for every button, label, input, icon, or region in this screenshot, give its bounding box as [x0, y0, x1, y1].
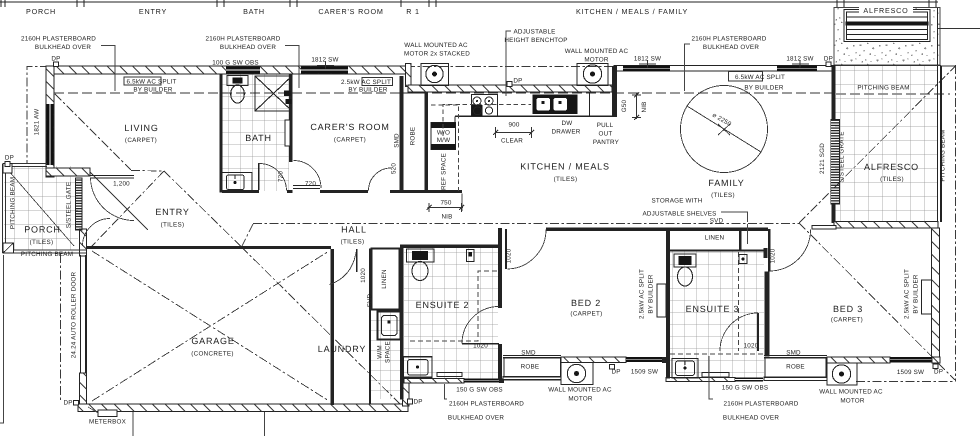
svg-text:900: 900 — [508, 122, 519, 129]
svg-text:150 G SW OBS: 150 G SW OBS — [722, 385, 769, 392]
svg-text:WALL MOUNTED AC: WALL MOUNTED AC — [404, 42, 468, 49]
svg-text:PULL: PULL — [597, 122, 614, 129]
svg-text:1812 SW: 1812 SW — [311, 57, 338, 64]
svg-text:(CONCRETE): (CONCRETE) — [191, 351, 234, 358]
svg-text:SPACE: SPACE — [385, 341, 392, 363]
svg-text:WALL MOUNTED AC: WALL MOUNTED AC — [565, 48, 629, 55]
svg-text:24.24 AUTO ROLLER DOOR: 24.24 AUTO ROLLER DOOR — [71, 271, 78, 358]
svg-text:2160H PLASTERBOARD: 2160H PLASTERBOARD — [21, 36, 96, 43]
svg-text:SVD: SVD — [710, 218, 724, 225]
svg-text:PITCHING BEAM: PITCHING BEAM — [857, 85, 909, 92]
svg-text:720: 720 — [305, 181, 316, 188]
svg-text:REF SPACE: REF SPACE — [441, 153, 448, 190]
svg-text:ENTRY: ENTRY — [139, 7, 167, 16]
svg-text:BULKHEAD OVER: BULKHEAD OVER — [220, 44, 276, 51]
svg-text:BY BUILDER: BY BUILDER — [913, 274, 920, 314]
svg-text:NIB: NIB — [441, 214, 452, 221]
svg-text:SMD: SMD — [394, 133, 401, 148]
svg-text:1020: 1020 — [473, 343, 488, 350]
svg-text:1509 SW: 1509 SW — [897, 369, 924, 376]
svg-text:BED 3: BED 3 — [833, 304, 863, 314]
svg-text:6.5kW AC SPLIT: 6.5kW AC SPLIT — [735, 74, 785, 81]
svg-text:G50: G50 — [621, 99, 628, 112]
svg-text:(TILES): (TILES) — [711, 192, 735, 199]
svg-text:720: 720 — [278, 171, 285, 182]
svg-text:MOTOR: MOTOR — [584, 57, 609, 64]
svg-text:SMD: SMD — [521, 350, 536, 357]
svg-text:SVD: SVD — [367, 293, 374, 307]
svg-text:KITCHEN / MEALS: KITCHEN / MEALS — [520, 162, 610, 172]
svg-text:1020: 1020 — [770, 248, 777, 263]
svg-text:2.5kW AC SPLIT: 2.5kW AC SPLIT — [904, 269, 911, 319]
svg-text:SMD: SMD — [786, 350, 801, 357]
svg-text:DW: DW — [562, 120, 573, 127]
svg-text:DP: DP — [414, 398, 423, 405]
svg-text:LINEN: LINEN — [705, 235, 725, 242]
svg-text:(CARPET): (CARPET) — [334, 137, 366, 144]
svg-text:150 G SW OBS: 150 G SW OBS — [456, 387, 503, 394]
svg-text:DP: DP — [612, 369, 621, 376]
svg-text:BATH: BATH — [243, 7, 265, 16]
svg-text:6.5kW AC SPLIT: 6.5kW AC SPLIT — [126, 79, 176, 86]
svg-text:HALL: HALL — [341, 225, 367, 235]
svg-text:WALL MOUNTED AC: WALL MOUNTED AC — [819, 389, 883, 396]
svg-text:CARER'S ROOM: CARER'S ROOM — [318, 7, 383, 16]
svg-text:W/M: W/M — [377, 345, 384, 359]
svg-text:100 G SW OBS: 100 G SW OBS — [212, 60, 259, 67]
svg-text:750: 750 — [440, 200, 451, 207]
svg-text:W/O: W/O — [437, 130, 450, 137]
svg-text:LAUNDRY: LAUNDRY — [318, 344, 366, 354]
svg-text:(TILES): (TILES) — [554, 176, 578, 183]
svg-text:ENSUITE 2: ENSUITE 2 — [416, 300, 470, 310]
svg-text:MOTOR: MOTOR — [840, 398, 865, 405]
svg-text:(TILES): (TILES) — [341, 239, 365, 246]
svg-text:(CARPET): (CARPET) — [570, 311, 602, 318]
svg-text:MOTOR 2x STACKED: MOTOR 2x STACKED — [404, 51, 470, 58]
svg-text:NIB: NIB — [641, 101, 648, 112]
svg-text:1509 SW: 1509 SW — [631, 369, 658, 376]
svg-text:BULKHEAD OVER: BULKHEAD OVER — [35, 44, 91, 51]
svg-text:PITCHING BEAM: PITCHING BEAM — [10, 177, 17, 229]
svg-text:DP: DP — [934, 369, 943, 376]
svg-text:1020: 1020 — [506, 248, 513, 263]
svg-text:R 1: R 1 — [406, 7, 420, 16]
svg-text:1,200: 1,200 — [113, 181, 130, 188]
svg-text:STORAGE WITH: STORAGE WITH — [652, 198, 703, 205]
svg-text:CLEAR: CLEAR — [501, 138, 523, 145]
svg-text:S/STEEL GATE: S/STEEL GATE — [66, 182, 73, 229]
svg-text:DP: DP — [64, 400, 73, 407]
svg-text:BATH: BATH — [245, 133, 272, 143]
svg-text:DP: DP — [51, 56, 60, 63]
svg-text:520: 520 — [391, 163, 398, 174]
svg-text:PITCHING BEAM: PITCHING BEAM — [940, 129, 947, 181]
svg-text:(CARPET): (CARPET) — [831, 317, 863, 324]
svg-text:LINEN: LINEN — [381, 269, 388, 289]
svg-text:1821 AW: 1821 AW — [34, 109, 41, 136]
svg-text:MOTOR: MOTOR — [568, 396, 593, 403]
svg-text:ALFRESCO: ALFRESCO — [864, 162, 919, 172]
svg-text:DP: DP — [824, 56, 833, 63]
svg-text:WALL MOUNTED AC: WALL MOUNTED AC — [548, 387, 612, 394]
svg-text:ROBE: ROBE — [786, 364, 805, 371]
svg-text:(TILES): (TILES) — [880, 176, 904, 183]
svg-text:ROBE: ROBE — [410, 127, 417, 146]
svg-text:DP: DP — [513, 78, 522, 85]
svg-text:2121 SGD: 2121 SGD — [819, 143, 826, 174]
svg-text:KITCHEN / MEALS / FAMILY: KITCHEN / MEALS / FAMILY — [576, 7, 688, 16]
svg-text:HEIGHT BENCHTOP: HEIGHT BENCHTOP — [504, 37, 567, 44]
svg-text:PITCHING BEAM: PITCHING BEAM — [21, 251, 73, 258]
svg-text:FAMILY: FAMILY — [708, 178, 744, 188]
svg-text:DRAWER: DRAWER — [552, 129, 581, 136]
svg-text:OUT: OUT — [599, 131, 613, 138]
svg-text:ALFRESCO: ALFRESCO — [863, 6, 908, 15]
svg-text:2.5kW AC SPLIT: 2.5kW AC SPLIT — [639, 269, 646, 319]
svg-text:LIVING: LIVING — [124, 123, 158, 133]
svg-text:2160H PLASTERBOARD: 2160H PLASTERBOARD — [692, 36, 767, 43]
svg-text:BULKHEAD OVER: BULKHEAD OVER — [723, 415, 779, 422]
svg-text:(TILES): (TILES) — [161, 222, 185, 229]
svg-text:ADJUSTABLE: ADJUSTABLE — [513, 29, 555, 36]
svg-text:BY BUILDER: BY BUILDER — [744, 85, 784, 92]
svg-text:BY BUILDER: BY BUILDER — [348, 87, 388, 94]
svg-text:1020: 1020 — [360, 268, 367, 283]
svg-text:S/STEEL GRATE: S/STEEL GRATE — [839, 131, 846, 182]
svg-text:BULKHEAD OVER: BULKHEAD OVER — [703, 44, 759, 51]
svg-text:(TILES): (TILES) — [30, 239, 54, 246]
svg-text:BY BUILDER: BY BUILDER — [648, 274, 655, 314]
svg-text:2160H PLASTERBOARD: 2160H PLASTERBOARD — [449, 401, 524, 408]
svg-text:PANTRY: PANTRY — [593, 139, 620, 146]
svg-text:GARAGE: GARAGE — [191, 336, 234, 346]
svg-text:1020: 1020 — [744, 343, 759, 350]
svg-text:CARER'S ROOM: CARER'S ROOM — [310, 122, 389, 132]
svg-text:ENSUITE 3: ENSUITE 3 — [686, 304, 740, 314]
svg-text:PORCH: PORCH — [24, 225, 61, 235]
svg-text:ROBE: ROBE — [521, 364, 540, 371]
svg-text:ENTRY: ENTRY — [155, 207, 189, 217]
svg-text:BY BUILDER: BY BUILDER — [133, 87, 173, 94]
svg-text:BED 2: BED 2 — [571, 298, 601, 308]
svg-text:ADJUSTABLE SHELVES: ADJUSTABLE SHELVES — [642, 211, 716, 218]
svg-text:BULKHEAD OVER: BULKHEAD OVER — [448, 415, 504, 422]
svg-text:2.5kW AC SPLIT: 2.5kW AC SPLIT — [341, 79, 391, 86]
svg-text:M/W: M/W — [437, 137, 451, 144]
svg-text:METERBOX: METERBOX — [89, 419, 127, 426]
svg-text:PORCH: PORCH — [26, 7, 56, 16]
svg-text:(CARPET): (CARPET) — [125, 137, 157, 144]
svg-text:2160H PLASTERBOARD: 2160H PLASTERBOARD — [206, 36, 281, 43]
svg-text:DP: DP — [5, 155, 14, 162]
svg-text:2160H PLASTERBOARD: 2160H PLASTERBOARD — [724, 401, 799, 408]
